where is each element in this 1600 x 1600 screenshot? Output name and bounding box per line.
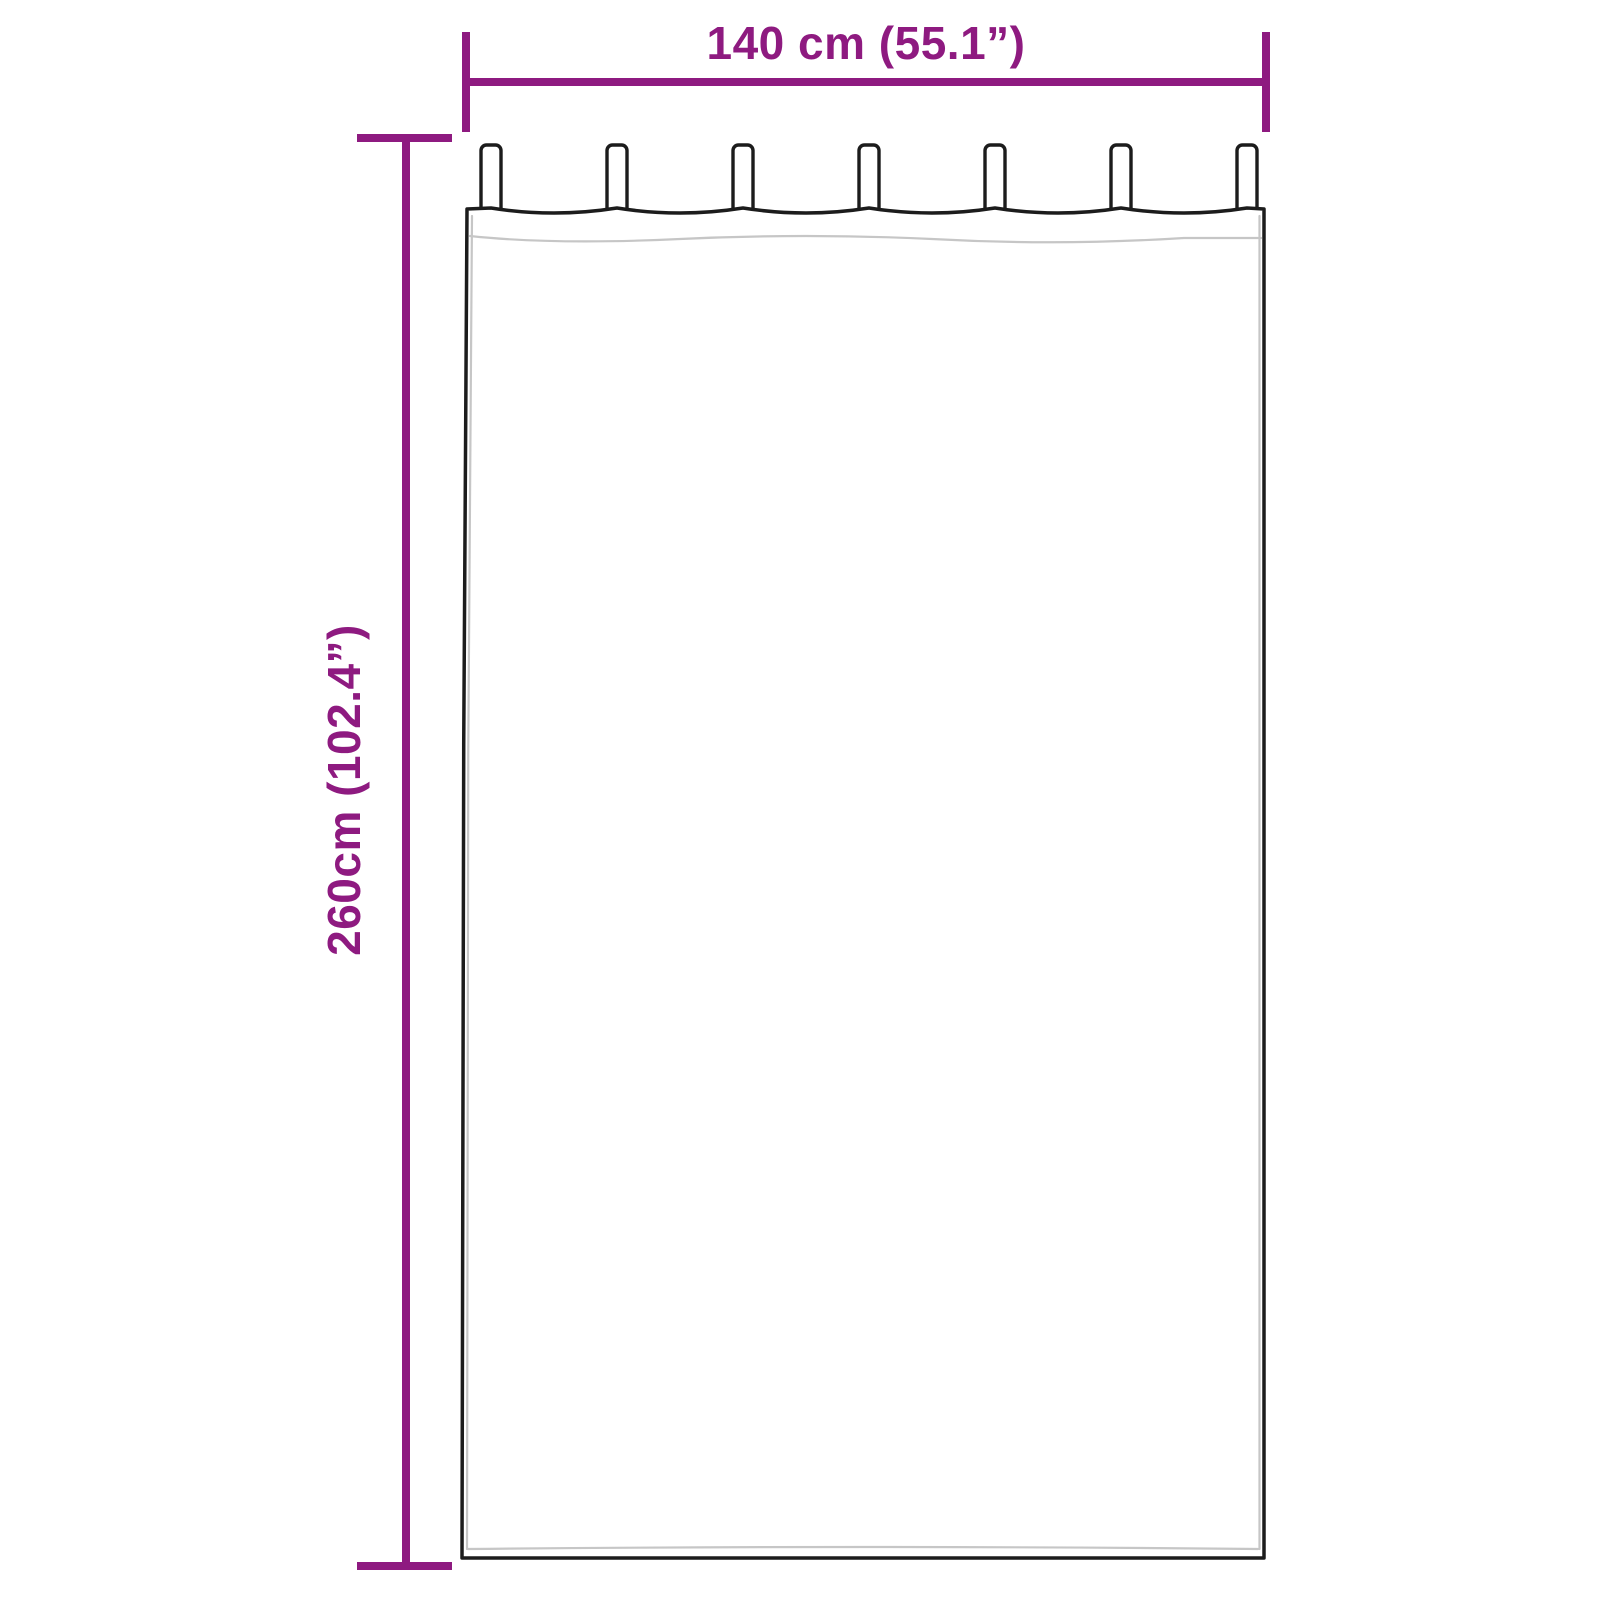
width-dimension-line [466, 78, 1266, 86]
product-dimension-diagram: 140 cm (55.1”) 260cm (102.4”) [0, 0, 1600, 1600]
height-dimension-cap-bottom [357, 1562, 452, 1570]
height-dimension-line [402, 134, 410, 1570]
curtain-tab-6 [1111, 145, 1131, 215]
height-dimension-label: 260cm (102.4”) [321, 624, 367, 956]
curtain-tab-1 [481, 145, 501, 215]
curtain-diagram [0, 0, 1600, 1600]
curtain-panel [462, 208, 1264, 1558]
width-dimension-label: 140 cm (55.1”) [466, 20, 1266, 66]
height-dimension-cap-top [357, 134, 452, 142]
curtain-tab-3 [733, 145, 753, 215]
height-dimension [357, 134, 452, 1570]
curtain-tabs [481, 145, 1257, 215]
curtain-tab-7 [1237, 145, 1257, 215]
curtain-tab-2 [607, 145, 627, 215]
curtain-tab-5 [985, 145, 1005, 215]
curtain-tab-4 [859, 145, 879, 215]
